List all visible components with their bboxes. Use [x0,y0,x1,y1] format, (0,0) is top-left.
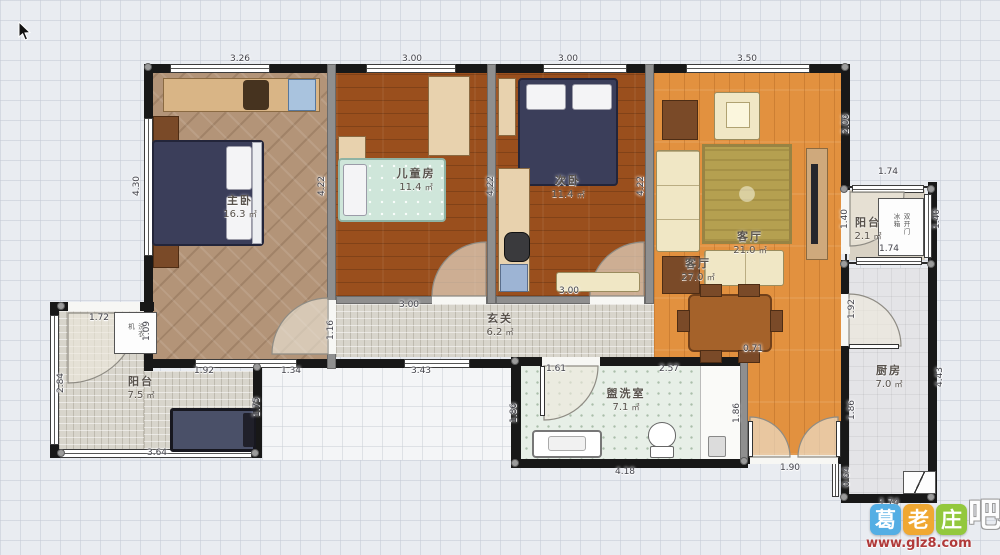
dining-chair-3[interactable] [700,350,722,363]
bench[interactable] [556,272,640,292]
kitchen-door-leaf[interactable] [849,344,899,349]
washroom-door-leaf[interactable] [540,366,545,416]
wall-corner-handle[interactable] [841,63,849,71]
wall-right-upper[interactable] [841,64,850,190]
sink-basin [548,436,586,451]
window-balcony-left-west[interactable] [50,315,59,445]
washroom-door-opening [542,357,600,366]
wall-children-east[interactable] [487,64,496,304]
wall-corner-handle[interactable] [511,357,519,365]
window-master-top[interactable] [170,64,270,73]
dining-table[interactable] [688,294,772,352]
watermark-tile: 葛 [870,504,901,535]
wall-corner-handle[interactable] [511,459,519,467]
balcony-right-door-opening [841,192,850,254]
mouse-cursor [18,22,32,42]
second-door-opening [590,296,644,304]
printer-cabinet[interactable] [500,264,528,292]
toilet-tank[interactable] [650,446,674,458]
children-cabinet[interactable] [338,136,366,160]
wall-corner-handle[interactable] [927,185,935,193]
daybed-pillow [243,413,254,447]
wall-corner-handle[interactable] [144,63,152,71]
dimension-label: 3.50 [737,54,757,64]
refrigerator[interactable]: 双开门冰箱 [878,198,924,256]
exterior-area [262,366,511,460]
toilet[interactable] [648,422,676,448]
children-door[interactable] [432,242,486,296]
shirt-item[interactable] [288,79,316,111]
wall-washroom-west[interactable] [511,357,521,468]
master-pillow-1[interactable] [226,146,252,190]
window-balcony-right-south[interactable] [856,257,922,265]
kitchen-sink[interactable] [903,471,936,494]
dining-chair-5[interactable] [677,310,690,332]
dimension-label: 1.74 [878,167,898,177]
washroom-door[interactable] [544,366,598,420]
area-rug[interactable] [702,144,792,244]
master-door[interactable] [272,298,328,354]
wall-corner-handle[interactable] [740,457,748,465]
wall-second-east[interactable] [645,64,654,304]
second-pillow-2[interactable] [572,84,612,110]
window-master-south[interactable] [195,359,297,368]
kitchen-door-opening [841,294,849,346]
wall-washroom-bottom[interactable] [511,459,748,468]
window-second-top[interactable] [543,64,627,73]
children-pillow[interactable] [343,164,367,216]
nightstand-top[interactable] [153,116,179,142]
armchair-cushion [726,102,750,128]
entry-door-left[interactable] [750,417,790,457]
entry-door-leaf-left[interactable] [748,421,753,457]
master-bed-fold [252,142,262,244]
wall-corner-handle[interactable] [840,260,848,268]
window-living-top[interactable] [686,64,810,73]
watermark-tile: 老 [903,504,934,535]
dining-chair-2[interactable] [738,284,760,297]
watermark-url: www.glz8.com [866,536,972,551]
balcony-left-door-opening [68,302,140,311]
dining-chair-6[interactable] [770,310,783,332]
kitchen-door[interactable] [849,294,901,346]
wall-corner-handle[interactable] [840,185,848,193]
window-children-top[interactable] [366,64,456,73]
second-cabinet-top[interactable] [498,78,516,136]
wall-corner-handle[interactable] [840,493,848,501]
children-door-opening [432,296,486,304]
entry-door-leaf-right[interactable] [836,421,841,457]
dimension-label: 3.26 [230,54,250,64]
dimension-label: 3.00 [558,54,578,64]
entry-door-right[interactable] [798,417,838,457]
wall-corner-handle[interactable] [253,363,261,371]
watermark-tiles: 葛老庄 [870,504,969,535]
design-canvas[interactable]: { "area_unit": "㎡", "rooms": [ {"id":"ma… [0,0,1000,555]
tv[interactable] [811,164,818,244]
master-pillow-2[interactable] [226,196,252,240]
dining-chair-4[interactable] [738,350,760,363]
hallway-floor[interactable] [336,304,654,357]
dining-chair-1[interactable] [700,284,722,297]
window-hallway-south[interactable] [404,359,470,368]
sofa[interactable] [656,150,700,252]
wall-corner-handle[interactable] [57,302,65,310]
second-pillow-1[interactable] [526,84,566,110]
refrigerator-label: 双开门冰箱 [891,213,911,241]
watermark: 葛老庄 吧 www.glz8.com [848,492,998,552]
clothes-item[interactable] [243,80,269,110]
wall-corner-handle[interactable] [927,260,935,268]
watermark-suffix: 吧 [968,488,1000,536]
wall-washroom-east[interactable] [740,359,748,461]
side-table-top[interactable] [662,100,698,140]
dimension-label: 4.30 [132,176,142,196]
watermark-tile: 庄 [936,504,967,535]
washing-machine-label: 洗衣机 [126,323,146,343]
dimension-label: 3.00 [402,54,422,64]
window-balcony-right-east[interactable] [924,194,932,258]
wall-corner-handle[interactable] [57,449,65,457]
wall-corner-handle[interactable] [251,449,259,457]
dimension-label: 1.90 [780,463,800,473]
water-heater[interactable] [708,436,726,457]
side-table-bottom[interactable] [662,256,700,294]
desk-chair[interactable] [504,232,530,262]
loveseat[interactable] [704,250,784,286]
dimension-label: 4.18 [615,467,635,477]
washing-machine[interactable]: 洗衣机 [114,312,157,354]
window-entry-stub[interactable] [832,463,839,497]
children-wardrobe[interactable] [428,76,470,156]
